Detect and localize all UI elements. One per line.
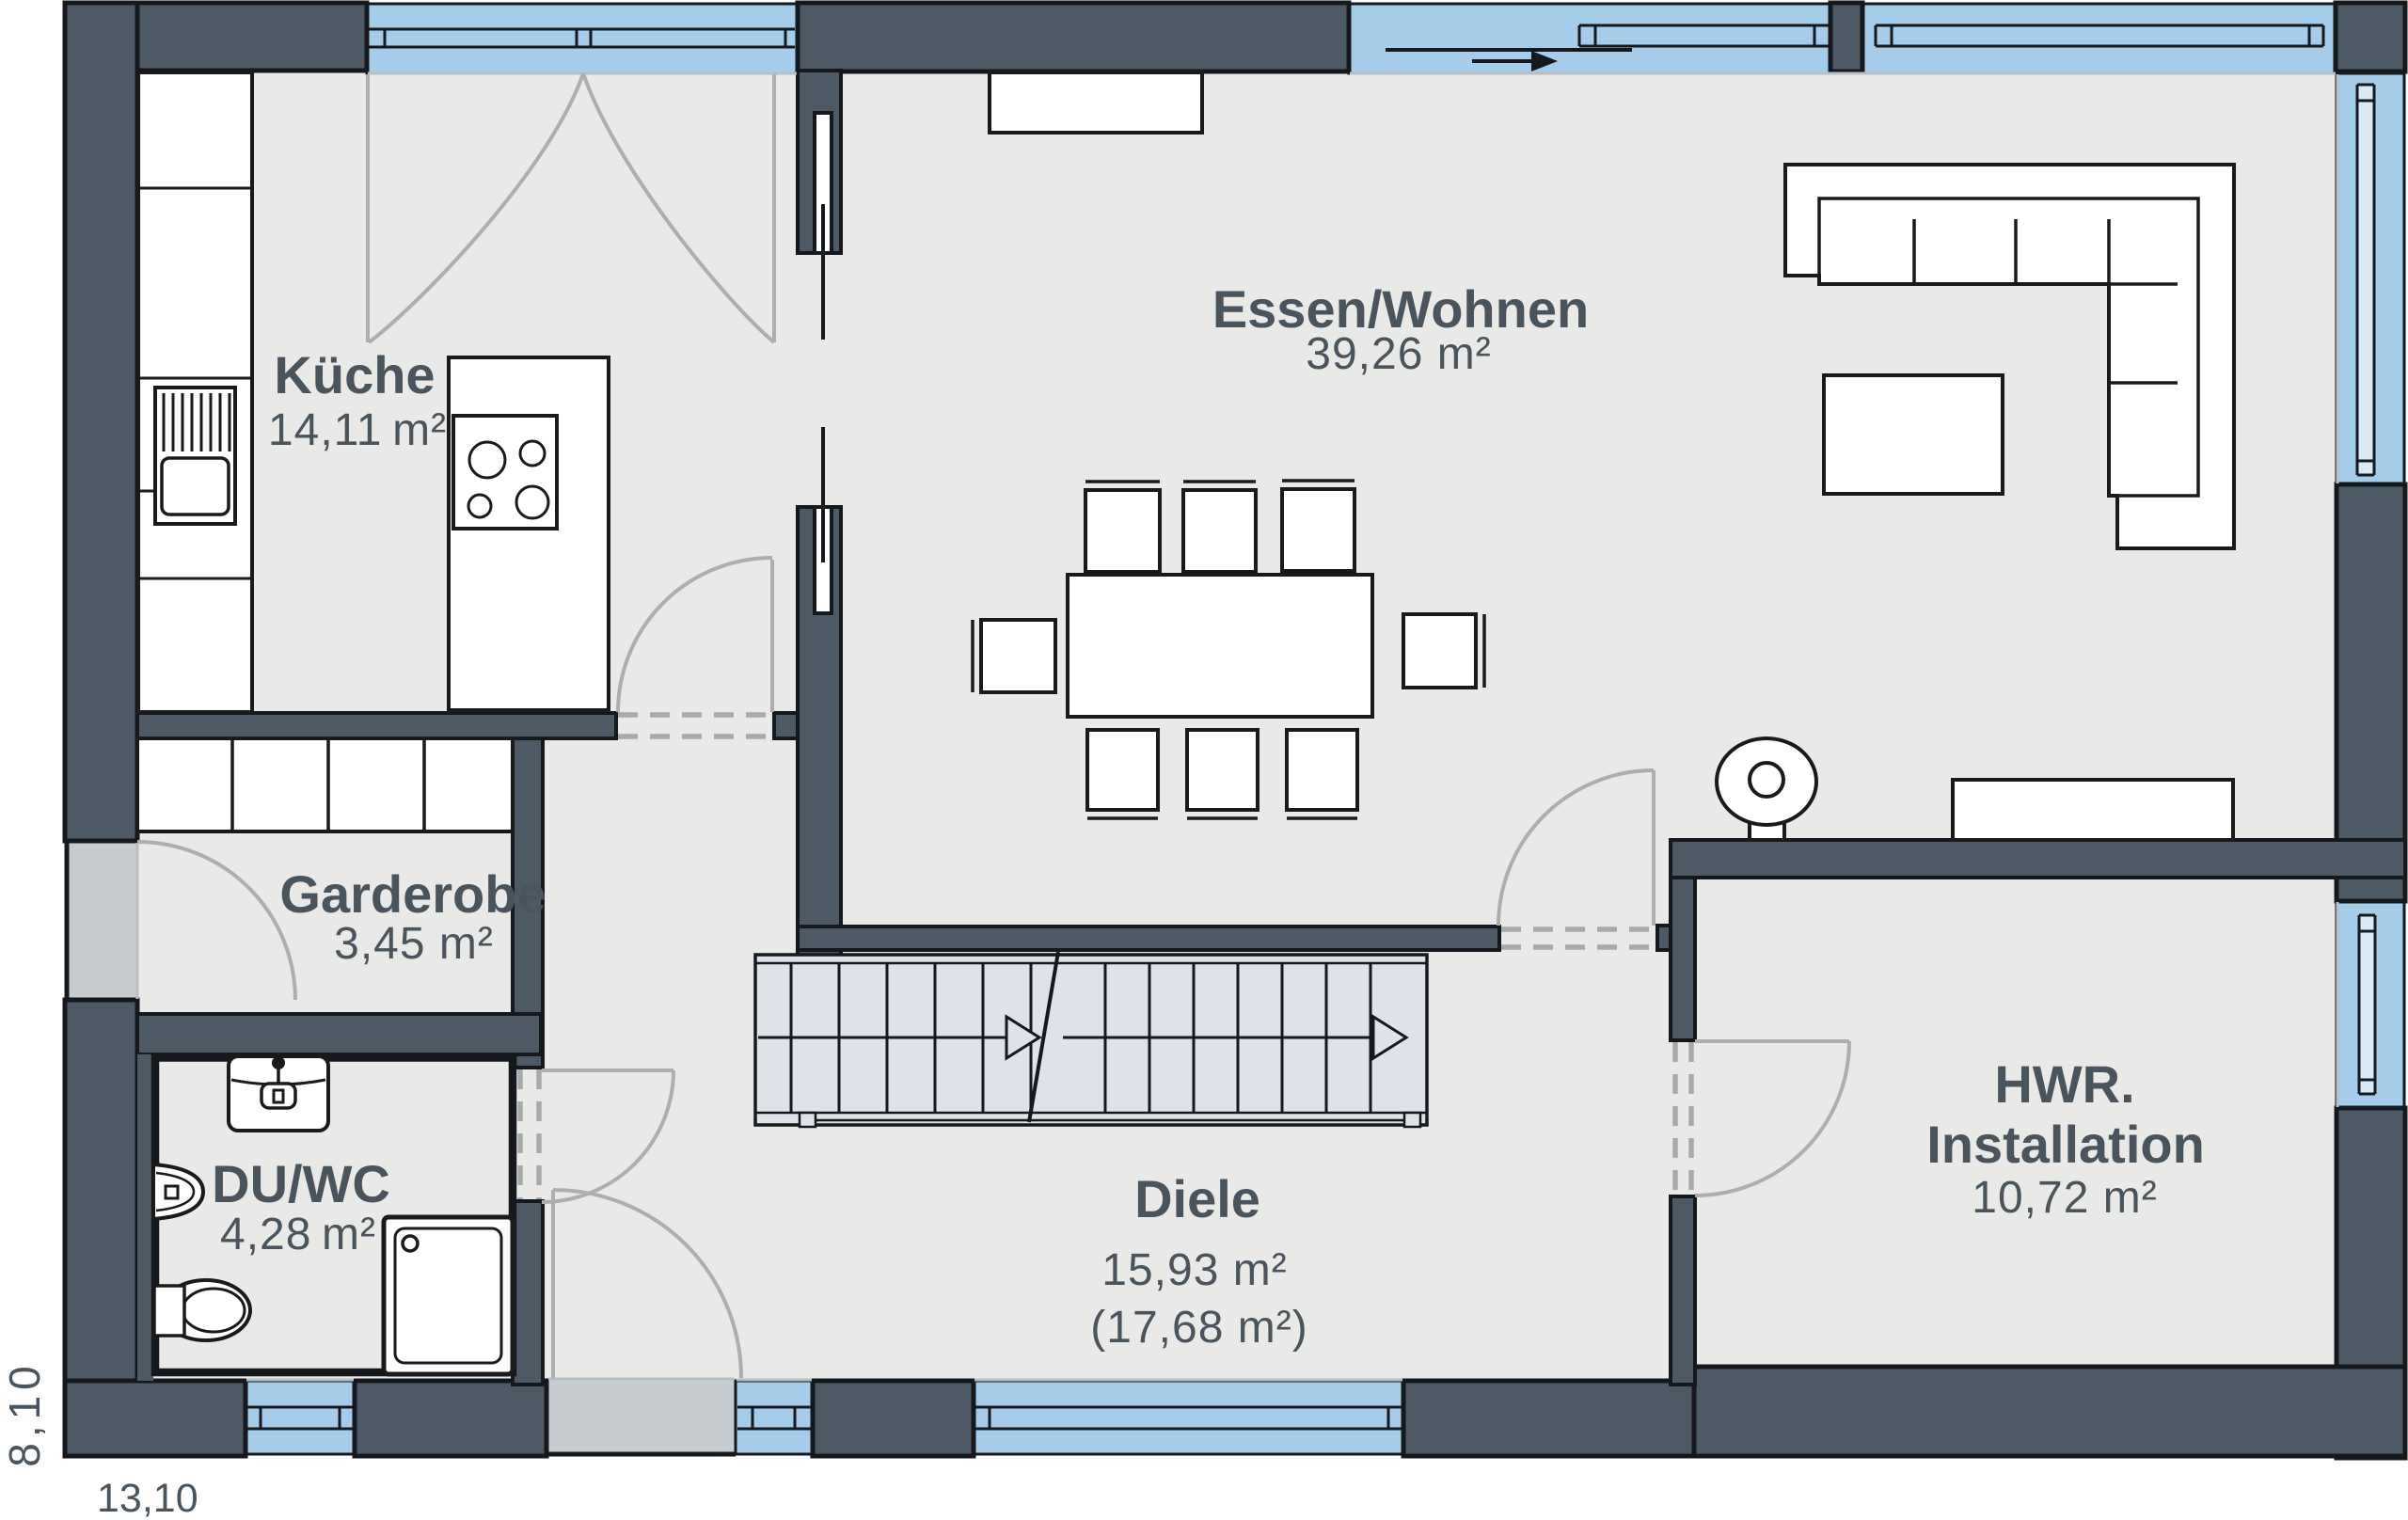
svg-text:Diele: Diele (1134, 1169, 1260, 1228)
svg-text:39,26 m²: 39,26 m² (1306, 329, 1491, 379)
svg-text:10,72 m²: 10,72 m² (1972, 1173, 2157, 1223)
svg-text:DU/WC: DU/WC (212, 1154, 390, 1213)
svg-text:Garderobe: Garderobe (279, 864, 546, 924)
svg-text:(17,68 m²): (17,68 m²) (1090, 1303, 1307, 1353)
svg-text:Küche: Küche (274, 345, 435, 404)
svg-text:HWR.: HWR. (1994, 1054, 2134, 1114)
svg-text:15,93 m²: 15,93 m² (1101, 1245, 1287, 1295)
svg-text:8,10: 8,10 (0, 1360, 49, 1467)
svg-text:Installation: Installation (1926, 1115, 2205, 1174)
svg-text:3,45 m²: 3,45 m² (334, 919, 494, 969)
svg-text:13,10: 13,10 (97, 1476, 198, 1520)
svg-text:4,28 m²: 4,28 m² (220, 1210, 376, 1259)
svg-text:14,11 m²: 14,11 m² (268, 405, 447, 455)
